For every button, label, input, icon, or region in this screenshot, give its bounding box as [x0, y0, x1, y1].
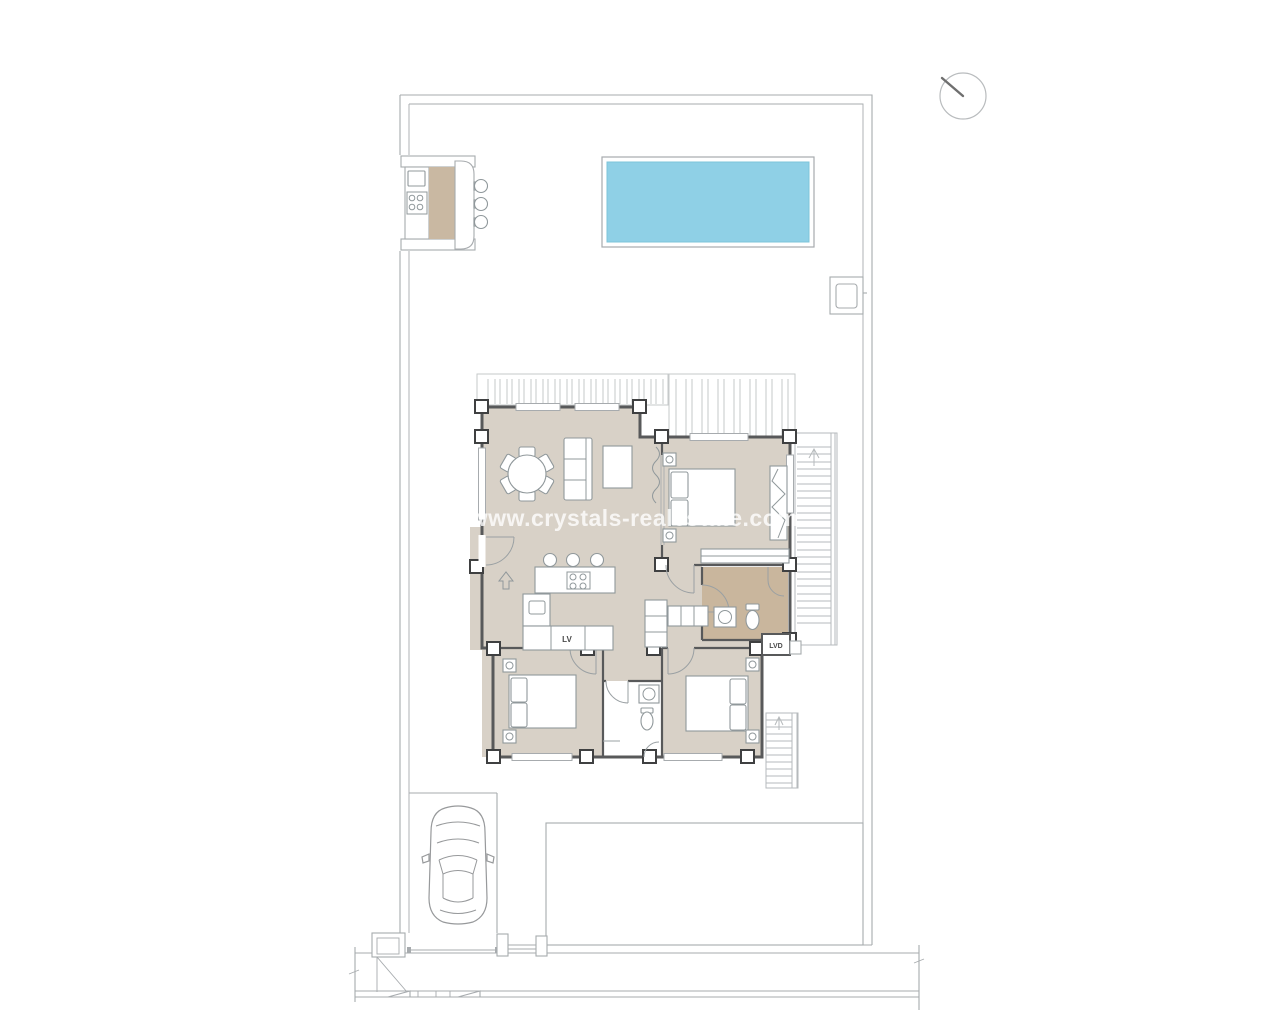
tv-cabinet: [603, 446, 632, 488]
pillar: [580, 750, 593, 763]
bar-counter: [455, 161, 474, 249]
pillow: [730, 705, 746, 730]
pillow: [511, 703, 527, 727]
pillar: [783, 430, 796, 443]
washer-dryer-label: LVD: [769, 643, 782, 650]
hall-closet: [668, 606, 708, 626]
equipment-unit: [830, 277, 867, 314]
north-indicator: [940, 73, 986, 119]
bar-stool: [475, 180, 488, 193]
pillar: [633, 400, 646, 413]
floor-plan-canvas: LV LVD: [0, 0, 1280, 1024]
kitchen-counter-left: [523, 594, 550, 626]
window: [516, 404, 560, 411]
outdoor-counter-walkway: [429, 167, 455, 239]
pergola-slats: [676, 379, 788, 436]
nightstand: [746, 658, 759, 671]
floor-plan-drawing: LV LVD: [0, 0, 1280, 1024]
nightstand: [503, 730, 516, 743]
gate-post: [536, 936, 547, 956]
outdoor-sink: [408, 171, 425, 186]
bar-stool: [475, 198, 488, 211]
pillar: [487, 750, 500, 763]
road-lines: [355, 953, 919, 997]
kitchen-stool: [567, 554, 580, 567]
road-end-lines: [355, 945, 919, 1010]
curb-ticks: [418, 991, 450, 997]
bar-stools: [474, 180, 488, 229]
toilet: [641, 712, 653, 730]
pillar: [475, 400, 488, 413]
sofa: [564, 438, 592, 500]
laundry-cell: [790, 641, 801, 654]
window: [690, 434, 748, 441]
car: [422, 806, 494, 924]
swimming-pool: [602, 157, 814, 247]
nightstand: [746, 730, 759, 743]
access-ramp: [377, 957, 407, 992]
entry-door-opening: [479, 535, 486, 567]
bar-stool: [475, 216, 488, 229]
window: [575, 404, 619, 411]
driveway: [409, 793, 497, 933]
pillar: [741, 750, 754, 763]
nightstand: [663, 453, 676, 466]
exterior-stairs-upper: [795, 433, 837, 645]
nightstand: [503, 659, 516, 672]
pillar: [655, 430, 668, 443]
watermark-text: www.crystals-realestate.com: [469, 505, 798, 531]
toilet-tank: [746, 604, 759, 610]
kitchen-stool: [544, 554, 557, 567]
outdoor-kitchen: [399, 155, 488, 251]
pillow: [511, 678, 527, 702]
pillow: [730, 679, 746, 704]
pillar: [475, 430, 488, 443]
window: [512, 754, 572, 761]
bathroom-1-floor: [702, 567, 788, 640]
break-marks: [349, 959, 924, 974]
pool-water: [607, 162, 809, 242]
car-body: [429, 806, 487, 924]
dishwasher-label: LV: [562, 635, 572, 644]
gate-post: [497, 934, 508, 956]
kitchen-stool: [591, 554, 604, 567]
pillow: [671, 472, 688, 498]
toilet: [746, 611, 759, 630]
pergola-right: [669, 374, 795, 438]
window: [664, 754, 722, 761]
exterior-stairs-lower: [766, 713, 798, 788]
hall-closet: [645, 600, 667, 647]
pillar: [487, 642, 500, 655]
dining-table: [508, 455, 546, 493]
lower-terrace: [546, 823, 863, 945]
curb-ramp-marks: [388, 991, 480, 997]
